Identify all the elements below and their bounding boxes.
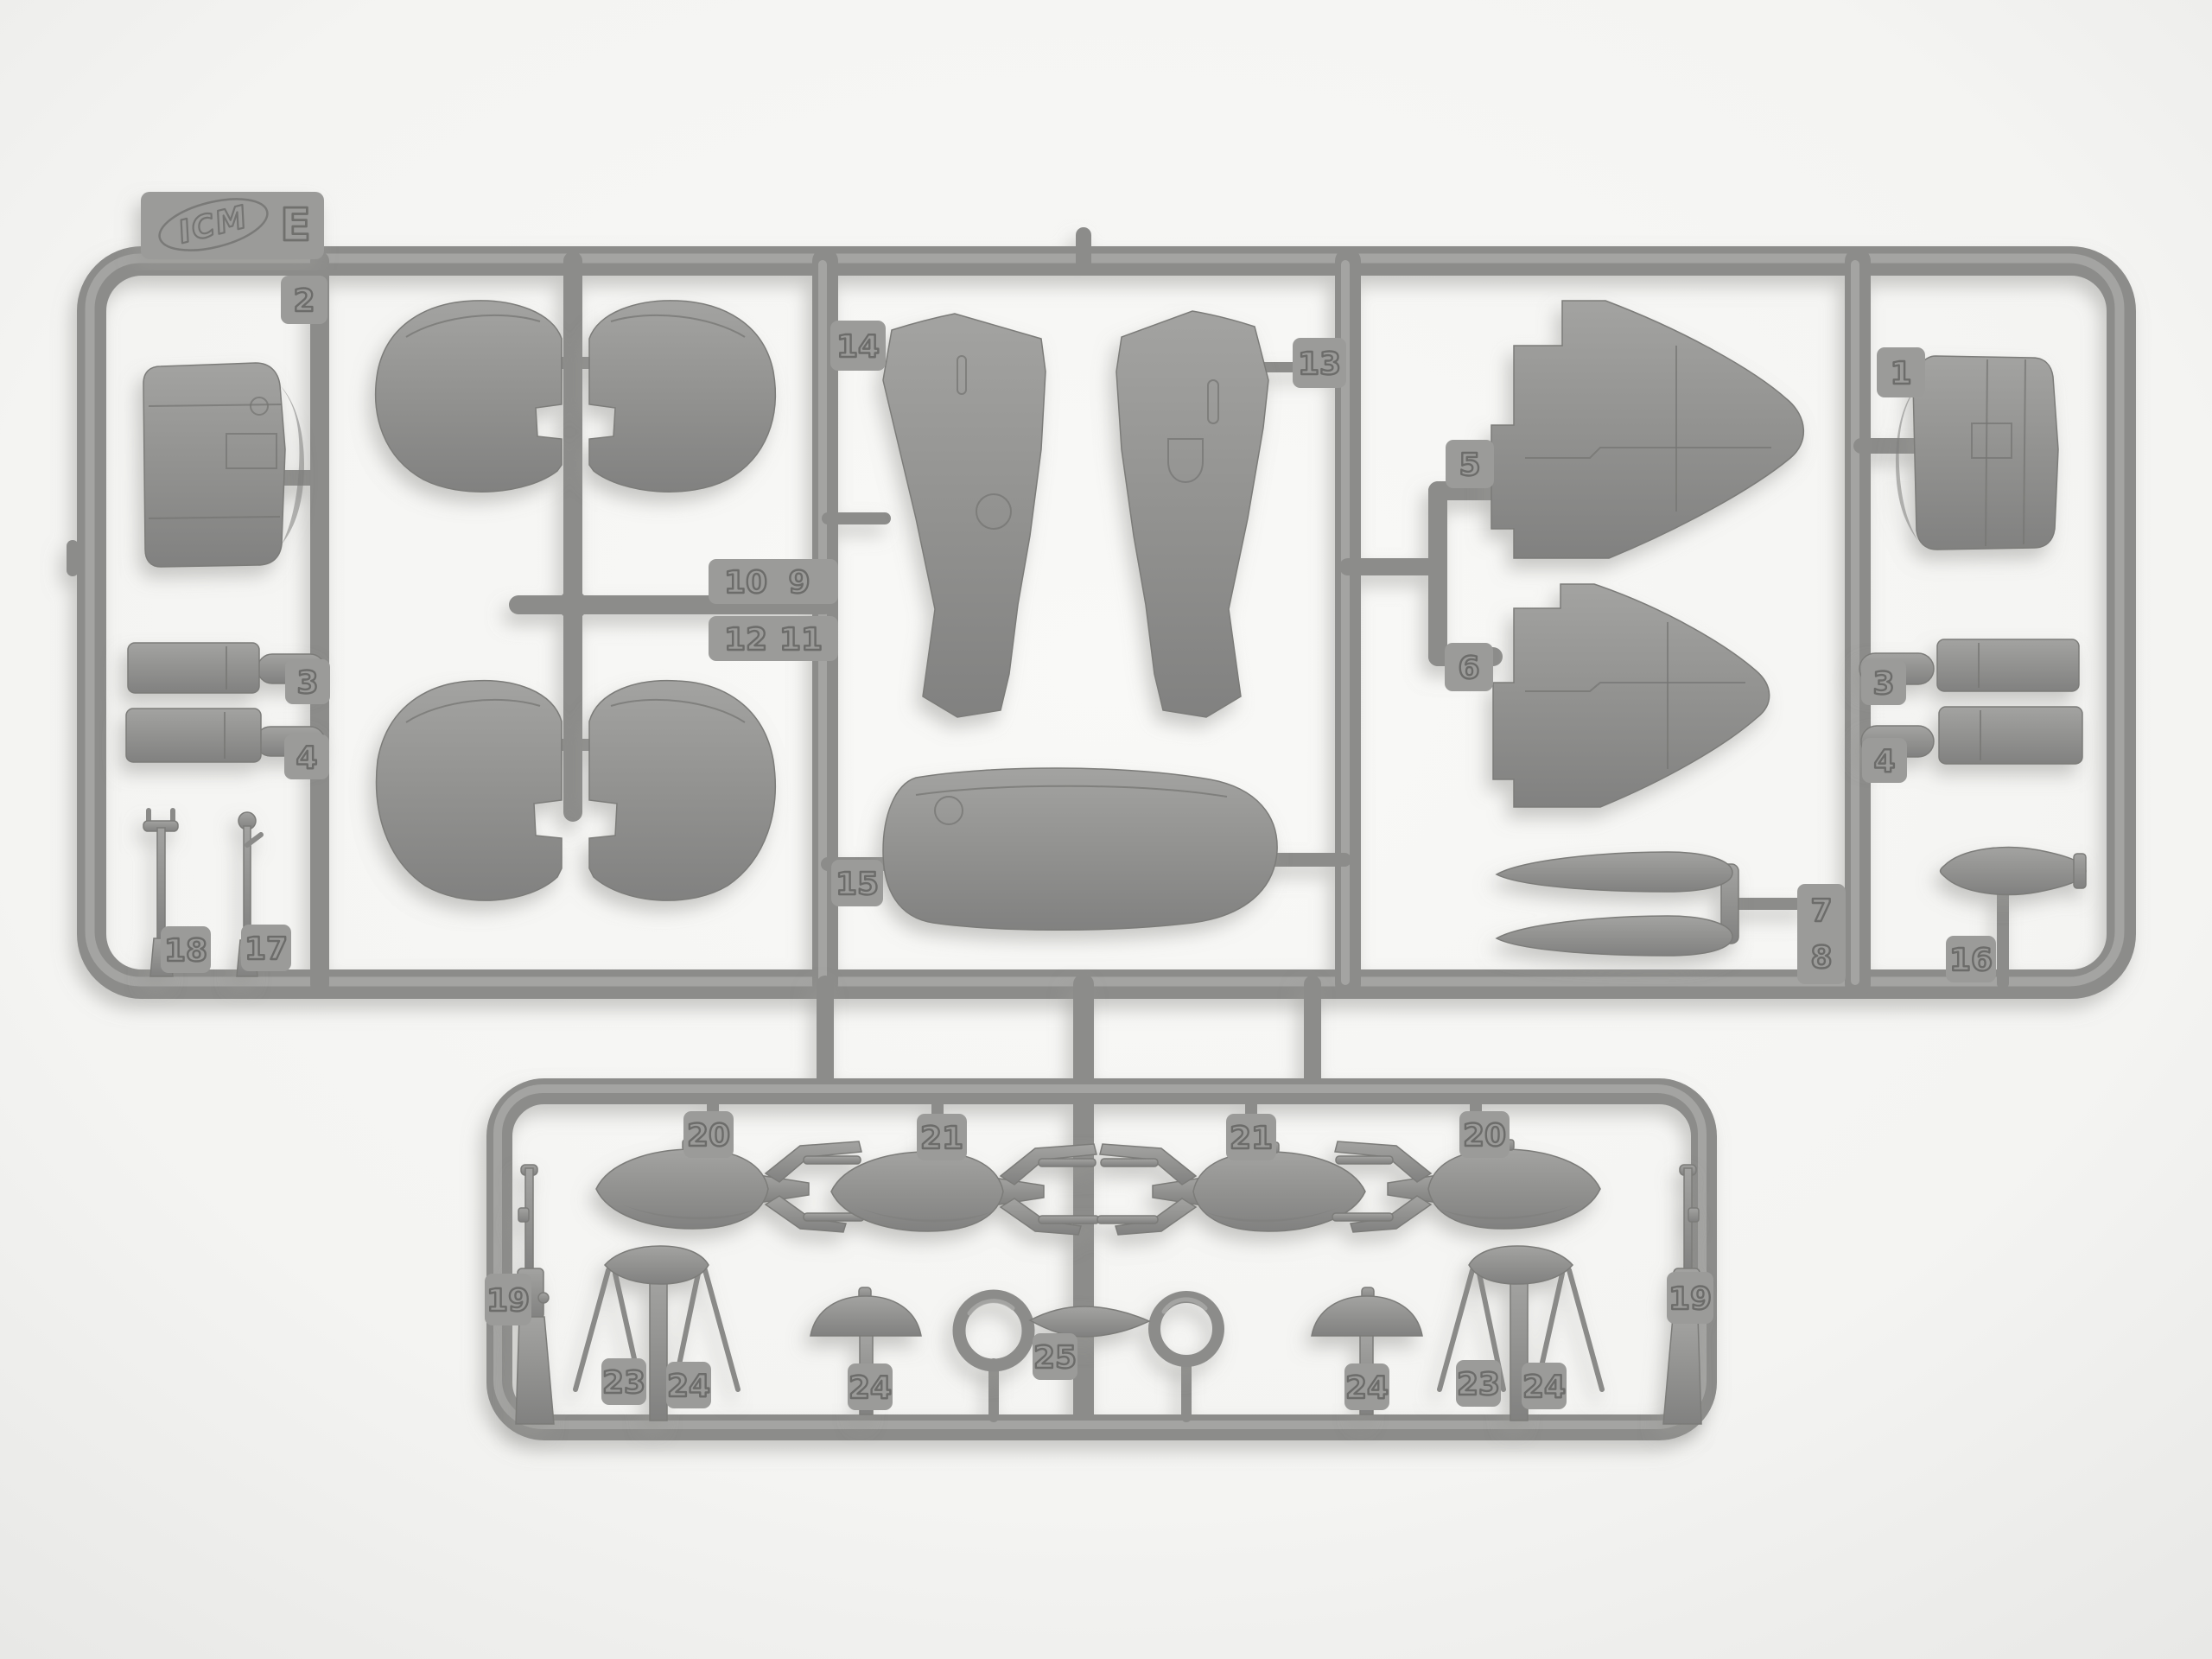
photo-stage: ICM E 2141311091211563434181715781620212… [0, 0, 2212, 1659]
sprue-photo: ICM E 2141311091211563434181715781620212… [0, 0, 2212, 1659]
